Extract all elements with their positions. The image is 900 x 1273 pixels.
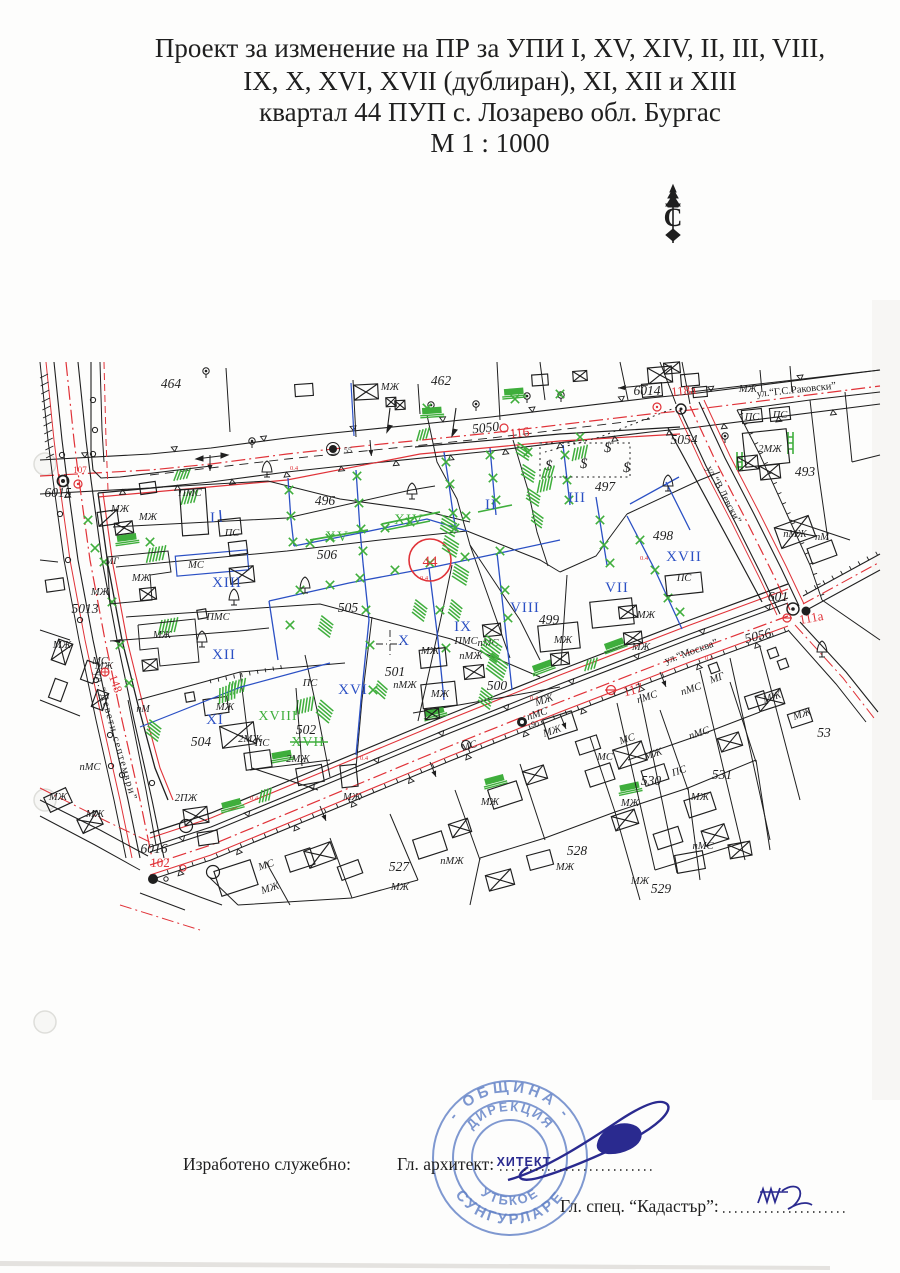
svg-text:XVI: XVI <box>338 682 368 698</box>
svg-text:XII: XII <box>212 647 236 663</box>
svg-text:462: 462 <box>431 373 452 388</box>
svg-text:601: 601 <box>768 589 788 604</box>
svg-text:МЖ: МЖ <box>85 809 105 820</box>
svg-text:XVII: XVII <box>666 549 702 565</box>
svg-text:VII: VII <box>605 580 629 596</box>
svg-text:Гл. спец. “Кадастър”:: Гл. спец. “Кадастър”: <box>560 1196 719 1216</box>
svg-text:ПС: ПС <box>254 738 271 749</box>
svg-text:$: $ <box>580 456 588 472</box>
svg-text:МЖ: МЖ <box>215 702 235 713</box>
svg-text:0.4: 0.4 <box>640 555 649 562</box>
svg-text:498: 498 <box>653 528 674 543</box>
svg-text:0.4: 0.4 <box>420 575 429 582</box>
svg-text:102: 102 <box>150 855 170 870</box>
svg-text:501: 501 <box>385 664 405 679</box>
svg-text:ПМС: ПМС <box>453 636 478 647</box>
svg-text:XI: XI <box>206 712 224 728</box>
svg-text:5054: 5054 <box>671 432 698 447</box>
svg-text:пМЖ: пМЖ <box>393 680 417 691</box>
svg-text:МЖ: МЖ <box>342 792 362 803</box>
svg-text:VIII: VIII <box>510 600 540 616</box>
svg-text:МЖ: МЖ <box>52 640 72 651</box>
svg-text:0.4: 0.4 <box>290 465 299 472</box>
svg-text:МЖ: МЖ <box>131 573 151 584</box>
svg-text:МЖ: МЖ <box>636 610 656 621</box>
svg-text:МЖ: МЖ <box>390 882 410 893</box>
svg-text:МЖ: МЖ <box>380 382 400 393</box>
svg-text:44: 44 <box>423 554 439 570</box>
svg-text:пМ: пМ <box>136 704 150 715</box>
svg-text:ПС: ПС <box>676 573 693 584</box>
svg-text:пМС: пМС <box>80 762 102 773</box>
svg-text:XVIII: XVIII <box>258 709 297 724</box>
svg-text:МЖ: МЖ <box>553 635 573 646</box>
svg-text:МС: МС <box>187 560 205 571</box>
svg-text:квартал 44 ПУП с. Лозарево обл: квартал 44 ПУП с. Лозарево обл. Бургас <box>259 97 721 127</box>
svg-text:2ПЖ: 2ПЖ <box>175 793 198 804</box>
svg-text:XV: XV <box>325 529 349 545</box>
svg-text:МС: МС <box>91 656 109 667</box>
svg-text:ПС: ПС <box>772 410 789 421</box>
svg-text:I: I <box>210 510 216 526</box>
svg-text:5050: 5050 <box>471 419 500 437</box>
svg-text:C: C <box>664 203 683 232</box>
svg-text:пМС: пМС <box>693 841 715 852</box>
svg-text:Проект за изменение на ПР за У: Проект за изменение на ПР за УПИ I, XV, … <box>155 33 825 63</box>
svg-text:МЖ: МЖ <box>630 876 650 887</box>
svg-text:МЖ: МЖ <box>631 642 651 653</box>
svg-text:МС: МС <box>596 752 614 763</box>
svg-text:505: 505 <box>338 600 359 615</box>
svg-text:527: 527 <box>389 859 411 874</box>
svg-text:5013: 5013 <box>72 601 99 616</box>
svg-text:464: 464 <box>161 376 182 391</box>
svg-text:Гл. архитект:: Гл. архитект: <box>397 1154 494 1174</box>
svg-text:90: 90 <box>531 720 539 729</box>
svg-text:IX: IX <box>454 619 472 635</box>
svg-text:499: 499 <box>539 612 560 627</box>
svg-text:493: 493 <box>795 464 816 479</box>
svg-text:496: 496 <box>315 493 336 508</box>
svg-text:$: $ <box>623 460 631 476</box>
svg-text:$: $ <box>604 440 612 456</box>
svg-text:МЖ: МЖ <box>420 646 440 657</box>
svg-text:ПС: ПС <box>302 678 319 689</box>
svg-text:506: 506 <box>317 547 338 562</box>
svg-text:6015: 6015 <box>45 485 72 500</box>
svg-text:531: 531 <box>712 767 732 782</box>
svg-text:497: 497 <box>595 479 617 494</box>
svg-text:XIV: XIV <box>394 512 424 528</box>
svg-text:ПМС: ПМС <box>177 488 202 499</box>
svg-text:116: 116 <box>509 424 530 441</box>
svg-text:6016: 6016 <box>141 841 168 856</box>
svg-text:504: 504 <box>191 734 212 749</box>
svg-text:МЖ: МЖ <box>152 630 172 641</box>
svg-text:XIII: XIII <box>212 575 242 591</box>
svg-text:X: X <box>398 633 410 649</box>
svg-text:55: 55 <box>344 446 352 455</box>
svg-text:III: III <box>568 490 586 506</box>
svg-text:Изработено служебно:: Изработено служебно: <box>183 1154 351 1174</box>
svg-text:107: 107 <box>73 465 87 475</box>
svg-text:МЖ: МЖ <box>690 792 710 803</box>
svg-text:пМЖ: пМЖ <box>459 651 483 662</box>
svg-text:МЖ: МЖ <box>480 797 500 808</box>
svg-text:пМ: пМ <box>815 532 830 543</box>
svg-text:ПС: ПС <box>744 412 761 423</box>
svg-text:ПС: ПС <box>224 528 241 539</box>
svg-text:МЖ: МЖ <box>620 798 640 809</box>
svg-text:МЖ: МЖ <box>738 384 758 395</box>
svg-text:II: II <box>485 497 497 513</box>
svg-text:пМЖ: пМЖ <box>783 529 807 540</box>
svg-text:М 1 : 1000: М 1 : 1000 <box>430 128 549 158</box>
svg-text:МЖ: МЖ <box>555 862 575 873</box>
svg-text:МЖ: МЖ <box>90 587 110 598</box>
svg-text:МГ: МГ <box>104 557 119 567</box>
svg-text:IX, X, XVI, XVII (дублиран), X: IX, X, XVI, XVII (дублиран), XI, XII и X… <box>243 66 736 96</box>
svg-text:ПМС: ПМС <box>205 612 230 623</box>
svg-text:0.4: 0.4 <box>530 695 539 702</box>
svg-text:МЖ: МЖ <box>48 792 68 803</box>
svg-text:500: 500 <box>487 678 508 693</box>
svg-text:0.4: 0.4 <box>360 755 369 762</box>
svg-text:МЖ: МЖ <box>430 689 450 700</box>
svg-text:529: 529 <box>651 881 672 896</box>
svg-text:53: 53 <box>817 725 831 740</box>
svg-text:МЖ: МЖ <box>138 512 158 523</box>
svg-text:528: 528 <box>567 843 588 858</box>
svg-text:0.4: 0.4 <box>250 795 259 802</box>
svg-text:МЖ: МЖ <box>110 504 130 515</box>
svg-text:пМЖ: пМЖ <box>440 856 464 867</box>
